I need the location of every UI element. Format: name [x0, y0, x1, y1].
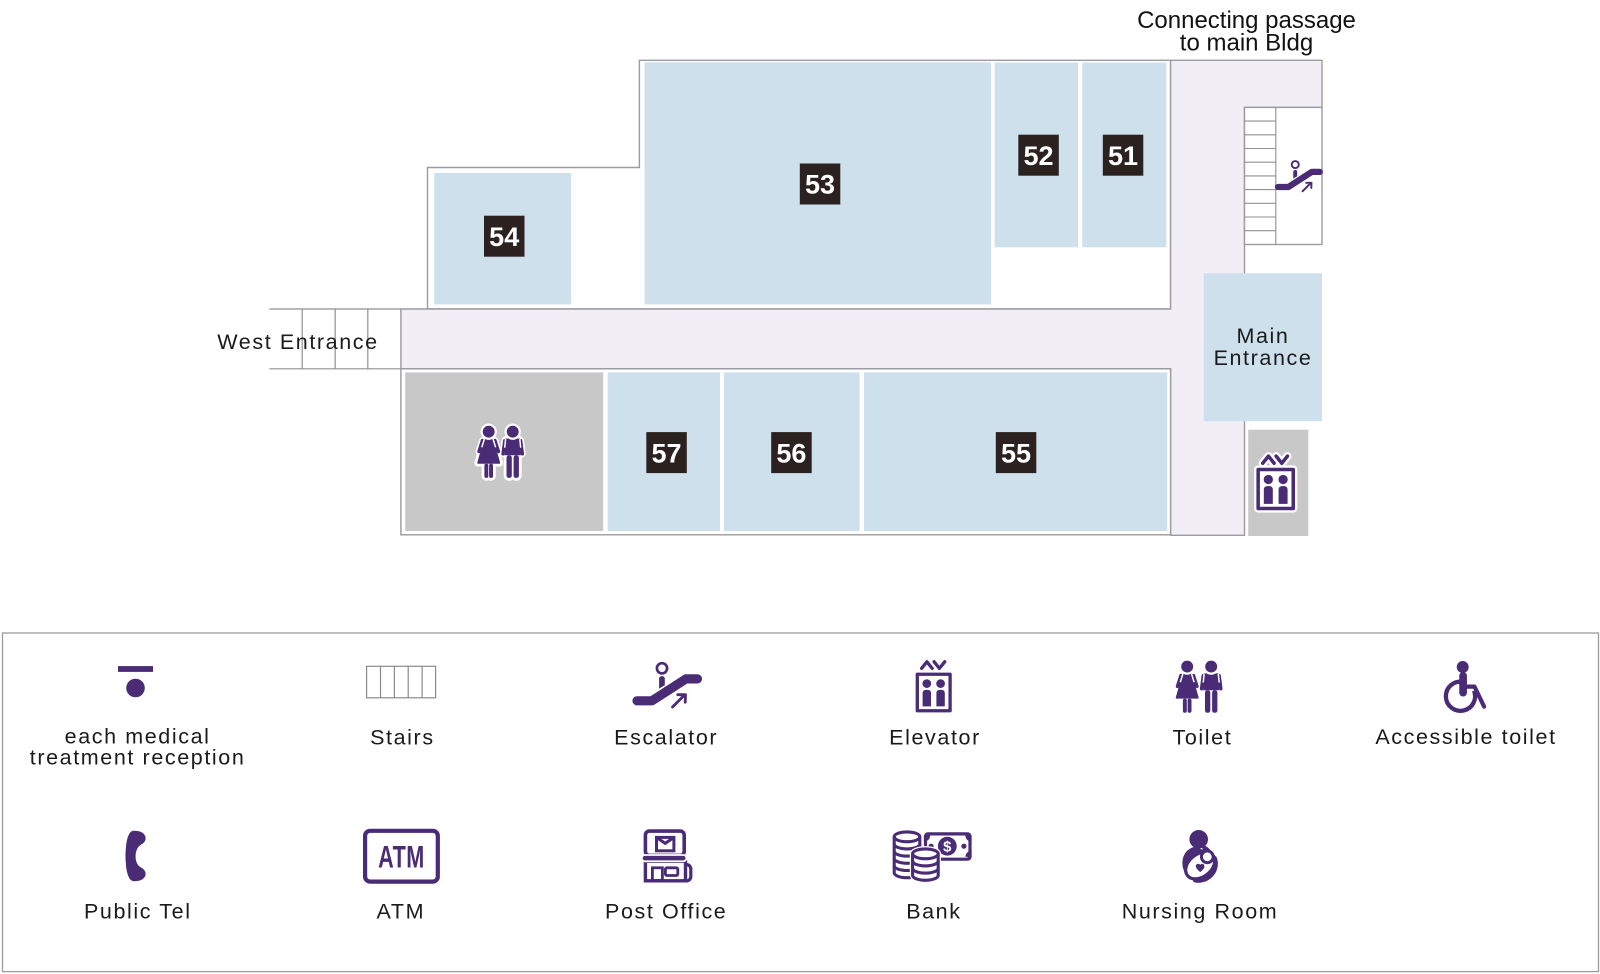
- svg-text:Main: Main: [1236, 324, 1289, 348]
- svg-text:Bank: Bank: [906, 900, 961, 924]
- svg-text:56: 56: [776, 438, 806, 468]
- svg-text:Escalator: Escalator: [614, 726, 718, 750]
- svg-text:Public Tel: Public Tel: [84, 900, 192, 924]
- svg-text:Toilet: Toilet: [1173, 726, 1233, 750]
- svg-text:57: 57: [651, 438, 681, 468]
- svg-text:51: 51: [1108, 141, 1138, 171]
- svg-text:Nursing Room: Nursing Room: [1122, 900, 1279, 924]
- svg-text:to main Bldg: to main Bldg: [1180, 29, 1313, 56]
- svg-text:Accessible toilet: Accessible toilet: [1375, 725, 1556, 749]
- svg-text:Elevator: Elevator: [889, 726, 981, 750]
- svg-text:West Entrance: West Entrance: [217, 330, 378, 354]
- svg-text:53: 53: [805, 170, 835, 200]
- svg-text:52: 52: [1023, 141, 1053, 171]
- svg-text:ATM: ATM: [378, 838, 425, 874]
- svg-text:55: 55: [1001, 438, 1031, 468]
- svg-text:Stairs: Stairs: [370, 726, 435, 750]
- svg-text:54: 54: [489, 222, 519, 252]
- svg-text:Entrance: Entrance: [1214, 346, 1313, 370]
- svg-text:Post Office: Post Office: [605, 900, 727, 924]
- svg-text:ATM: ATM: [377, 900, 426, 924]
- svg-text:treatment reception: treatment reception: [30, 745, 246, 769]
